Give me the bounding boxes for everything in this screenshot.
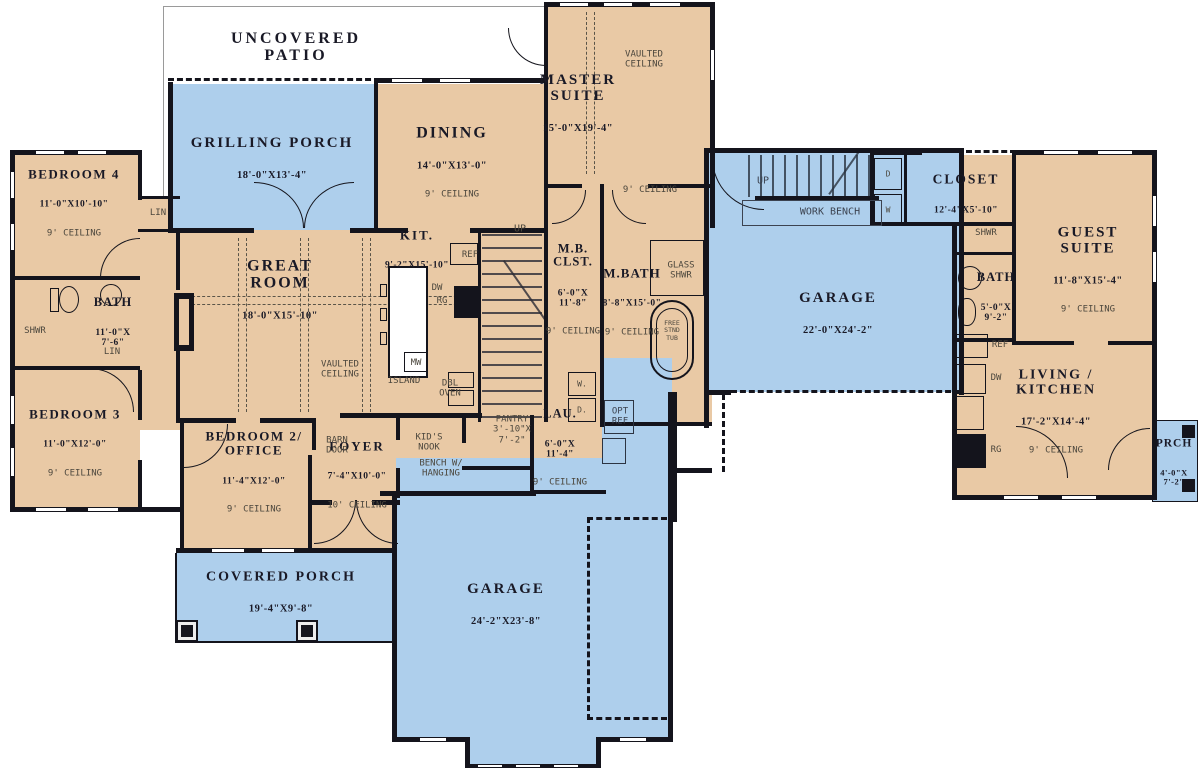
annotation-linen-closet-bath: LIN [104,347,120,357]
porch-post [178,622,196,640]
beam-line [370,238,371,412]
wall [672,468,712,473]
window [1098,150,1132,155]
annotation-vaulted-ceiling-master: VAULTED CEILING [625,50,663,71]
window [10,172,15,198]
annotation-up-stairs-main: UP [514,223,526,235]
wall [138,370,142,420]
wall [668,392,673,742]
window [604,2,632,7]
wall [470,228,548,233]
room-label-master-suite: MASTER SUITE 15'-0"X19'-4" [540,54,616,152]
wall [138,460,142,510]
room-label-grilling-porch: GRILLING PORCH 18'-0"X13'-4" [191,117,354,199]
room-label-prch: PRCH 4'-0"X 7'-2" [1156,419,1193,504]
wall [1012,341,1074,345]
beam-line [182,304,472,305]
room-label-guest-bath: BATH 5'-0"X 9'-2" [977,253,1016,341]
window [1004,495,1038,500]
annotation-fridge-kitchen: REF [462,250,478,260]
annotation-dishwasher-kitchen: DW [432,283,443,293]
wall [396,418,400,440]
garage-bay-dashed [587,517,590,720]
window [10,448,15,476]
room-label-garage-right: GARAGE 22'-0"X24'-2" [799,272,877,354]
room-label-great-room: GREAT ROOM 18'-0"X15'-10" [242,240,318,341]
fireplace-inner [178,298,190,346]
annotation-pantry: PANTRY 3'-10"X 7'-2" [493,414,531,445]
wall [10,366,140,370]
wall [904,153,907,225]
window [516,764,540,768]
mud-sink [602,438,626,464]
room-label-closet: CLOSET 12'-4"X5'-10" [933,154,1000,233]
room-label-mbath: M.BATH 8'-8"X15'-0" 9' CEILING [603,249,662,356]
wall [176,230,180,290]
wall [1016,150,1157,155]
room-label-bedroom3: BEDROOM 3 11'-0"X12'-0" 9' CEILING [29,390,121,497]
garage-bay-floor [465,740,598,766]
window [478,764,502,768]
window [10,224,15,250]
wall [870,150,922,155]
wall [955,495,1157,500]
closet-dashed-wall [922,150,1016,154]
annotation-kids-nook: KID'S NOOK [415,433,442,454]
window [554,764,578,768]
annotation-work-bench: WORK BENCH [800,206,860,218]
room-label-garage-bottom: GARAGE 24'-2"X23'-8" [467,563,545,645]
annotation-washer-garage: W [886,205,891,214]
garage-door-opening-dashed [731,390,960,394]
annotation-washer: W. [577,379,587,388]
window [1044,150,1078,155]
annotation-microwave: MW [411,358,422,368]
window [36,507,66,512]
annotation-dryer: D. [577,405,587,414]
annotation-shower-left: SHWR [24,326,46,336]
room-label-guest-suite: GUEST SUITE 11'-8"X15'-4" 9' CEILING [1032,207,1144,334]
wall [176,340,180,420]
annotation-optional-fridge: OPT REF [612,407,628,428]
toilet-tank [50,288,59,312]
room-label-dining: DINING 14'-0"X13'-0" 9' CEILING [416,106,488,217]
living-dishwasher [956,364,986,394]
wall [706,390,731,395]
annotation-range-kitchen: RG [437,296,448,306]
annotation-glass-shower: GLASS SHWR [667,261,694,282]
wall [340,413,482,418]
room-label-mb-closet: M.B. CLST. 6'-0"X 11'-8" 9' CEILING [546,225,600,356]
window [392,78,422,83]
toilet-bowl [59,286,79,313]
window [1152,252,1157,282]
island-stool [380,308,387,321]
annotation-free-standing-tub: FREE STND TUB [664,320,680,342]
living-range [954,434,986,468]
annotation-shower-guest: SHWR [975,228,997,238]
wall [138,196,180,199]
annotation-linen-closet: LIN [150,208,166,218]
wall [168,228,254,233]
window [1062,495,1096,500]
window [440,78,470,83]
wall [138,150,142,200]
wall [710,2,715,228]
window [88,507,118,512]
guest-toilet [958,298,976,326]
annotation-range-living: RG [991,445,1002,455]
room-label-uncovered-patio: UNCOVERED PATIO [231,12,361,82]
beam-line [182,296,472,297]
room-label-bedroom4: BEDROOM 4 11'-0"X10'-10" 9' CEILING [28,150,120,257]
beam-line [362,238,363,412]
wall [374,82,378,232]
garage-opening-dashed [722,394,725,472]
living-sink [954,396,984,430]
window [620,737,646,742]
window [420,737,446,742]
annotation-dishwasher-living: DW [991,373,1002,383]
annotation-island: ISLAND [388,376,421,386]
garage-bay-dashed [587,717,667,720]
wall [462,415,466,443]
annotation-up-stairs-garage: UP [757,175,769,187]
annotation-fridge-living: REF [992,340,1008,350]
window [650,2,680,7]
range [454,286,478,318]
window [710,50,715,80]
room-label-bedroom2-office: BEDROOM 2/ OFFICE 11'-4"X12'-0" 9' CEILI… [206,411,303,532]
wall [312,418,316,450]
room-label-covered-porch: COVERED PORCH 19'-4"X9'-8" [206,552,356,633]
annotation-barn-door: BARN DOOR [326,436,348,457]
floor-plan: UNCOVERED PATIO GRILLING PORCH 18'-0"X13… [0,0,1200,781]
annotation-dryer-garage: D [886,169,891,178]
window [560,2,588,7]
annotation-vaulted-ceiling-great: VAULTED CEILING [321,360,359,381]
wall [548,184,582,188]
island-stool [380,332,387,345]
wall [380,491,536,496]
wall [168,82,173,232]
room-label-living-kitchen: LIVING / KITCHEN 17'-2"X14'-4" 9' CEILIN… [1016,350,1096,475]
wall [478,230,481,422]
wall [1108,341,1157,345]
beam-line [238,238,239,412]
window [10,396,15,424]
wall [462,466,534,470]
annotation-hall-ceiling: 9' CEILING [623,185,677,195]
wall [704,148,709,428]
annotation-bench-hanging: BENCH W/ HANGING [419,459,462,480]
garage-bay-dashed [587,517,667,520]
room-label-kitchen: KIT. 9'-2"X15'-10" [385,211,449,290]
annotation-double-oven: DBL OVEN [439,379,461,400]
window [1152,196,1157,226]
